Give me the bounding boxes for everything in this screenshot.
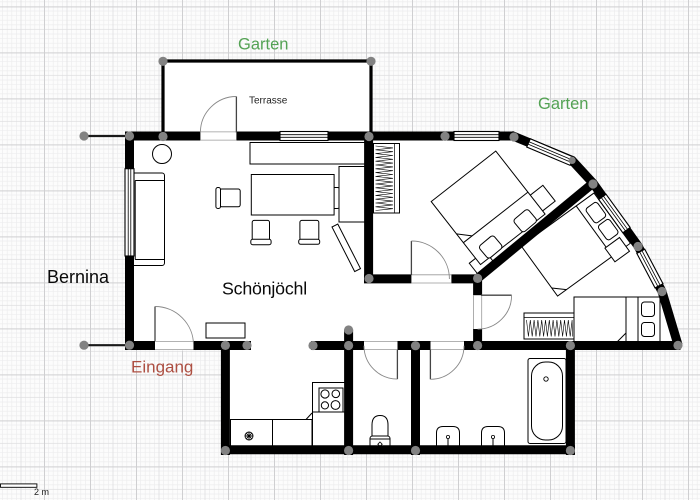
svg-text:2 m: 2 m: [34, 487, 49, 497]
svg-text:Schönjöchl: Schönjöchl: [222, 279, 307, 299]
svg-text:Bernina: Bernina: [47, 267, 110, 287]
svg-text:Garten: Garten: [538, 95, 588, 113]
svg-text:Garten: Garten: [238, 36, 288, 54]
svg-text:Eingang: Eingang: [131, 358, 193, 377]
svg-text:Terrasse: Terrasse: [249, 96, 288, 107]
